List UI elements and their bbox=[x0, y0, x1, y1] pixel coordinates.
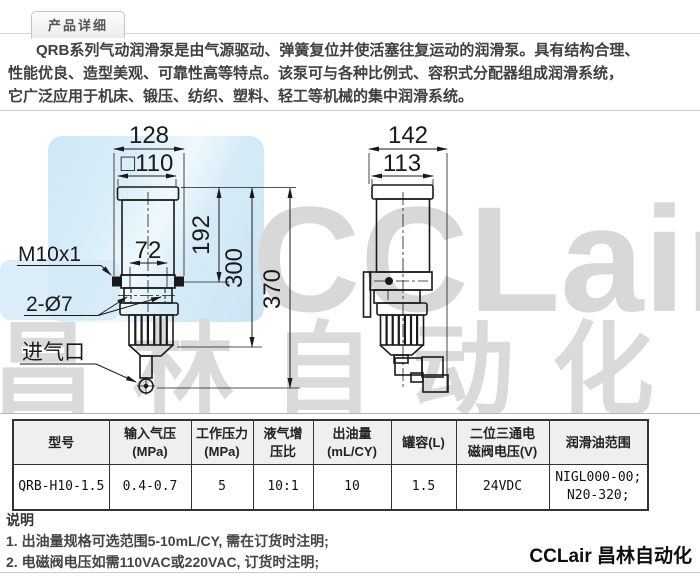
company-logo-text: CCLair 昌林自动化 bbox=[529, 541, 692, 568]
col-working-pressure: 工作压力(MPa) bbox=[191, 420, 253, 465]
dim-192-label: 192 bbox=[188, 215, 215, 255]
dim-128-label: 128 bbox=[129, 122, 169, 149]
cell-model: QRB-H10-1.5 bbox=[13, 465, 109, 511]
page-bottom-border bbox=[0, 572, 700, 573]
mount-nut-right bbox=[175, 277, 184, 286]
cell-input-pressure: 0.4-0.7 bbox=[109, 465, 191, 511]
front-view: 128 □110 72 M10x1 2-Ø7 bbox=[17, 122, 300, 395]
side-view: 142 113 bbox=[364, 122, 449, 392]
dim-72-label: 72 bbox=[135, 237, 162, 264]
cell-valve-voltage: 24VDC bbox=[456, 465, 549, 511]
col-oil-range: 润滑油范围 bbox=[549, 420, 648, 465]
spec-table-data-row: QRB-H10-1.5 0.4-0.7 5 10:1 10 1.5 24VDC … bbox=[13, 465, 648, 511]
technical-drawing: CCLair 昌林自动化 bbox=[0, 112, 700, 414]
cell-working-pressure: 5 bbox=[191, 465, 253, 511]
dim-370-label: 370 bbox=[259, 269, 286, 309]
holes-label: 2-Ø7 bbox=[26, 293, 73, 316]
dim-300-label: 300 bbox=[221, 248, 248, 288]
description-line: 它广泛应用于机床、锻压、纺织、塑料、轻工等机械的集中润滑系统。 bbox=[8, 85, 696, 108]
thread-label: M10x1 bbox=[18, 243, 81, 266]
section-divider bbox=[0, 110, 700, 111]
col-output: 出油量(mL/CY) bbox=[313, 420, 391, 465]
cell-output: 10 bbox=[313, 465, 391, 511]
dim-110-label: □110 bbox=[121, 150, 174, 177]
description-line: 性能优良、造型美观、可靠性高等特点。该泵可与各种比例式、容积式分配器组成润滑系统… bbox=[8, 62, 696, 85]
spec-table-header-row: 型号 输入气压(MPa) 工作压力(MPa) 液气增压比 出油量(mL/CY) … bbox=[13, 420, 648, 465]
col-valve-voltage: 二位三通电磁阀电压(V) bbox=[456, 420, 549, 465]
note-item-1: 1. 出油量规格可选范围5-10mL/CY, 需在订货时注明; bbox=[6, 531, 329, 552]
notes-section: 说明 1. 出油量规格可选范围5-10mL/CY, 需在订货时注明; 2. 电磁… bbox=[6, 510, 329, 573]
air-inlet-label: 进气口 bbox=[22, 341, 85, 364]
note-item-2: 2. 电磁阀电压如需110VAC或220VAC, 订货时注明; bbox=[6, 552, 329, 573]
dim-113-label: 113 bbox=[383, 150, 421, 177]
spec-table: 型号 输入气压(MPa) 工作压力(MPa) 液气增压比 出油量(mL/CY) … bbox=[12, 419, 649, 511]
tab-product-details[interactable]: 产品详细 bbox=[31, 11, 125, 39]
dim-142-label: 142 bbox=[388, 122, 428, 149]
cell-ratio: 10:1 bbox=[253, 465, 313, 511]
cell-tank: 1.5 bbox=[391, 465, 456, 511]
col-model: 型号 bbox=[13, 420, 109, 465]
pump-dimension-drawing: 128 □110 72 M10x1 2-Ø7 bbox=[0, 112, 700, 413]
cell-oil-range: NIGL000-00;N20-320; bbox=[549, 465, 648, 511]
col-tank: 罐容(L) bbox=[391, 420, 456, 465]
col-input-pressure: 输入气压(MPa) bbox=[109, 420, 191, 465]
product-description: QRB系列气动润滑泵是由气源驱动、弹簧复位并使活塞往复运动的润滑泵。具有结构合理… bbox=[8, 39, 696, 108]
product-detail-page: 产品详细 QRB系列气动润滑泵是由气源驱动、弹簧复位并使活塞往复运动的润滑泵。具… bbox=[0, 0, 700, 577]
notes-title: 说明 bbox=[6, 510, 329, 531]
col-ratio: 液气增压比 bbox=[253, 420, 313, 465]
mount-nut-left bbox=[113, 277, 122, 286]
description-line: QRB系列气动润滑泵是由气源驱动、弹簧复位并使活塞往复运动的润滑泵。具有结构合理… bbox=[8, 39, 696, 62]
